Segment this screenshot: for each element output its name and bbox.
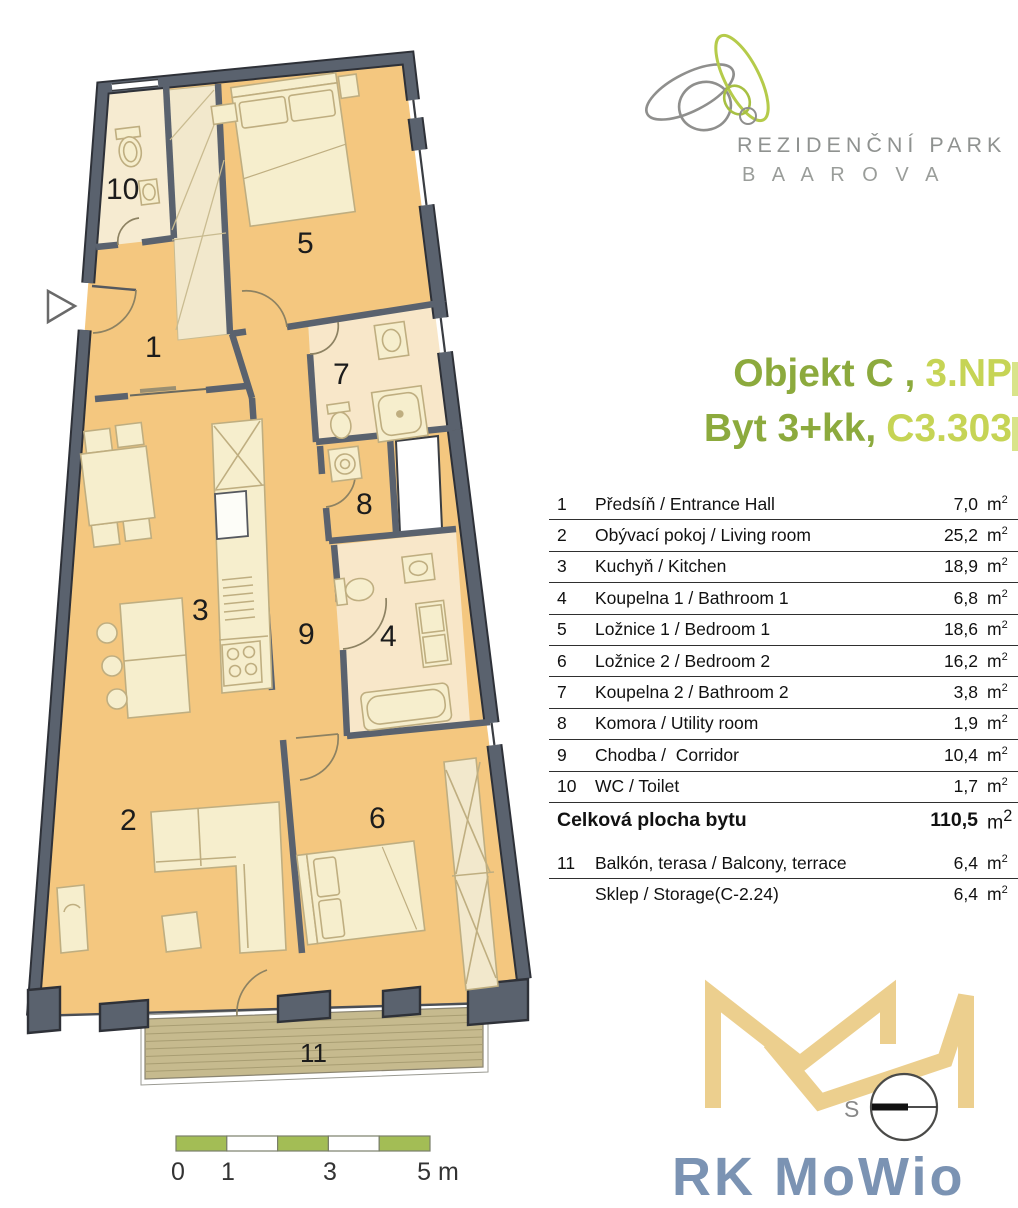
title-line1: Objekt C ,3.NP (0, 346, 1012, 401)
table-row: 7 Koupelna 2 / Bathroom 2 3,8 m2 (549, 677, 1018, 708)
row-unit: m2 (978, 494, 1018, 515)
cropped-glyph (1012, 362, 1018, 396)
row-num: 3 (549, 556, 595, 577)
table-row: 6 Ložnice 2 / Bedroom 2 16,2 m2 (549, 646, 1018, 677)
row-area: 18,6 (908, 619, 978, 640)
table-row-balcony: 11 Balkón, terasa / Balcony, terrace 6,4… (549, 848, 1018, 879)
tv-bench-icon (57, 885, 88, 953)
total-area: 110,5 (908, 809, 978, 832)
row-unit: m2 (978, 619, 1018, 640)
scale-label-1: 1 (221, 1158, 235, 1186)
title-line2: Byt 3+kk,C3.303 (0, 401, 1012, 456)
table-row: 10 WC / Toilet 1,7 m2 (549, 772, 1018, 803)
title-line1-dark: Objekt C , (733, 352, 915, 395)
row-num: 8 (549, 713, 595, 734)
row-unit: m2 (978, 853, 1018, 874)
sink-icon (402, 553, 435, 582)
stool-icon (97, 623, 117, 643)
apartment: 1 2 3 4 5 6 7 8 9 10 11 (28, 58, 528, 1085)
table-row: 9 Chodba / Corridor 10,4 m2 (549, 740, 1018, 771)
row-area: 16,2 (908, 651, 978, 672)
scale-bar: 0 1 3 5 m (171, 1136, 459, 1186)
row-area: 6,4 (908, 853, 978, 874)
room-label-5: 5 (297, 227, 314, 260)
bed-icon (297, 841, 425, 945)
stool-icon (102, 656, 122, 676)
row-name: Chodba / Corridor (595, 745, 908, 766)
room-label-9: 9 (298, 618, 315, 651)
scale-label-5m: 5 m (417, 1158, 459, 1186)
room-label-4: 4 (380, 620, 397, 653)
brand-name-line2: B A A R O V A (742, 164, 945, 186)
row-area: 10,4 (908, 745, 978, 766)
room-label-3: 3 (192, 594, 209, 627)
stool-icon (107, 689, 127, 709)
row-area: 7,0 (908, 494, 978, 515)
table-row: 5 Ložnice 1 / Bedroom 1 18,6 m2 (549, 615, 1018, 646)
row-unit: m2 (978, 525, 1018, 546)
row-num: 10 (549, 776, 595, 797)
row-name: Sklep / Storage(C-2.24) (595, 884, 908, 905)
row-num: 4 (549, 588, 595, 609)
row-num: 9 (549, 745, 595, 766)
room-label-10: 10 (106, 173, 139, 206)
row-unit: m2 (978, 556, 1018, 577)
row-name: Koupelna 1 / Bathroom 1 (595, 588, 908, 609)
coffee-table-icon (162, 912, 201, 952)
row-name: Předsíň / Entrance Hall (595, 494, 908, 515)
page-title: Objekt C ,3.NP Byt 3+kk,C3.303 (0, 346, 1012, 456)
pillar (383, 987, 420, 1017)
entry-arrow-icon (48, 291, 75, 322)
row-name: Balkón, terasa / Balcony, terrace (595, 853, 908, 874)
room-label-11: 11 (300, 1038, 327, 1068)
row-num: 5 (549, 619, 595, 640)
row-num: 2 (549, 525, 595, 546)
table-row: 8 Komora / Utility room 1,9 m2 (549, 709, 1018, 740)
cropped-glyph (1012, 417, 1018, 451)
page: { "brand": { "name_line1": "REZIDENČNÍ P… (0, 0, 1018, 1200)
row-unit: m2 (978, 651, 1018, 672)
row-name: Ložnice 1 / Bedroom 1 (595, 619, 908, 640)
title-line2-dark: Byt 3+kk, (704, 407, 876, 450)
table-row: 4 Koupelna 1 / Bathroom 1 6,8 m2 (549, 583, 1018, 614)
table-row-storage: Sklep / Storage(C-2.24) 6,4 m2 (549, 879, 1018, 909)
total-label: Celková plocha bytu (549, 809, 908, 832)
row-name: WC / Toilet (595, 776, 908, 797)
row-unit: m2 (978, 588, 1018, 609)
table-row: 2 Obývací pokoj / Living room 25,2 m2 (549, 520, 1018, 551)
row-area: 1,7 (908, 776, 978, 797)
brand-name-line1: REZIDENČNÍ PARK (737, 132, 1006, 157)
row-area: 3,8 (908, 682, 978, 703)
row-num: 7 (549, 682, 595, 703)
row-unit: m2 (978, 884, 1018, 905)
row-area: 18,9 (908, 556, 978, 577)
row-area: 6,4 (908, 884, 978, 905)
row-num: 6 (549, 651, 595, 672)
row-unit: m2 (978, 745, 1018, 766)
row-area: 25,2 (908, 525, 978, 546)
pillar (28, 987, 60, 1033)
scale-label-3: 3 (323, 1158, 337, 1186)
pillar (100, 1000, 148, 1031)
fridge-icon (215, 491, 248, 539)
scale-label-0: 0 (171, 1158, 185, 1186)
brand-logo-icon (639, 28, 779, 136)
title-line1-light: 3.NP (925, 352, 1012, 395)
area-table: 1 Předsíň / Entrance Hall 7,0 m2 2 Obýva… (549, 489, 1018, 910)
room-label-6: 6 (369, 802, 386, 835)
table-row: 1 Předsíň / Entrance Hall 7,0 m2 (549, 489, 1018, 520)
sink-icon (139, 179, 160, 205)
row-unit: m2 (978, 776, 1018, 797)
row-name: Ložnice 2 / Bedroom 2 (595, 651, 908, 672)
room-label-2: 2 (120, 804, 137, 837)
pillar (278, 991, 330, 1022)
row-num: 11 (549, 853, 595, 874)
compass-north-letter: S (844, 1096, 859, 1122)
total-row: Celková plocha bytu 110,5 m2 (549, 803, 1018, 839)
kitchen-counter-icon (212, 419, 272, 693)
row-name: Komora / Utility room (595, 713, 908, 734)
row-area: 1,9 (908, 713, 978, 734)
row-name: Koupelna 2 / Bathroom 2 (595, 682, 908, 703)
row-name: Kuchyň / Kitchen (595, 556, 908, 577)
row-unit: m2 (978, 682, 1018, 703)
row-unit: m2 (978, 713, 1018, 734)
table-row: 3 Kuchyň / Kitchen 18,9 m2 (549, 552, 1018, 583)
row-area: 6,8 (908, 588, 978, 609)
footer-brand-text: RK MoWio (672, 1146, 965, 1208)
total-unit: m2 (978, 807, 1018, 835)
row-name: Obývací pokoj / Living room (595, 525, 908, 546)
room-label-8: 8 (356, 488, 373, 521)
title-line2-light: C3.303 (886, 407, 1012, 450)
row-num: 1 (549, 494, 595, 515)
